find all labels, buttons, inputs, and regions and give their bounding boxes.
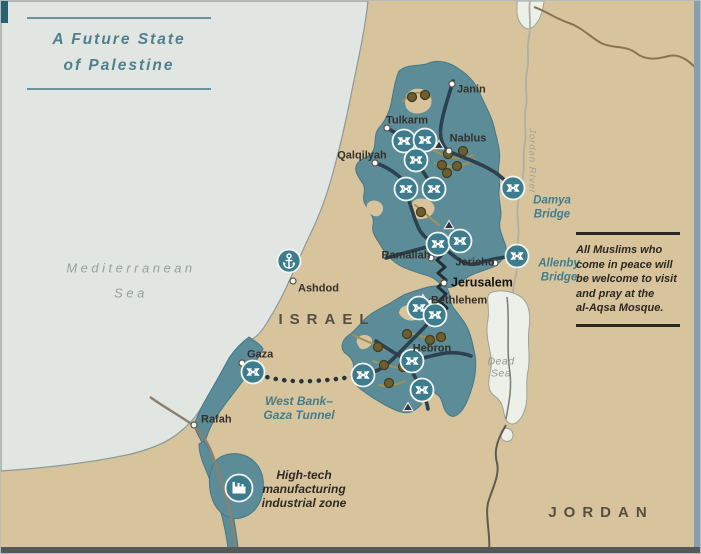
community-dot (443, 169, 452, 178)
road-crossing-icon (395, 178, 418, 201)
community-dot (417, 208, 426, 217)
right-edge-strip (694, 1, 700, 554)
quote-box: All Muslims who come in peace will be we… (576, 232, 680, 327)
community-dot (459, 147, 468, 156)
community-dot (408, 93, 417, 102)
community-dot (374, 343, 383, 352)
city-dot (446, 148, 452, 154)
map-title: A Future State of Palestine (21, 9, 217, 98)
community-dot (453, 162, 462, 171)
title-rule-top (27, 17, 211, 19)
anchor-port-icon (278, 250, 301, 273)
factory-icon (226, 475, 253, 502)
community-dot (438, 161, 447, 170)
bottom-edge-strip (1, 547, 701, 553)
road-crossing-icon (405, 149, 428, 172)
road-crossing-icon (352, 364, 375, 387)
road-crossing-icon (423, 178, 446, 201)
title-line1: A Future State (21, 27, 217, 53)
community-dot (421, 91, 430, 100)
title-rule-bottom (27, 88, 211, 90)
quote-text: All Muslims who come in peace will be we… (576, 243, 680, 316)
road-crossing-icon (242, 361, 265, 384)
city-dot (428, 255, 434, 261)
road-crossing-icon (424, 304, 447, 327)
city-dot (290, 278, 296, 284)
road-crossing-icon (449, 230, 472, 253)
map-stage: Mediterranean SeaISRAELJORDANJaninTulkar… (0, 0, 701, 554)
city-dot (441, 280, 447, 286)
community-dot (385, 379, 394, 388)
road-crossing-icon (401, 350, 424, 373)
community-dot (426, 336, 435, 345)
city-dot (449, 81, 455, 87)
road-crossing-icon (427, 233, 450, 256)
city-dot (384, 125, 390, 131)
title-line2: of Palestine (21, 53, 217, 79)
community-dot (380, 361, 389, 370)
road-crossing-icon (502, 177, 525, 200)
city-dot (191, 422, 197, 428)
city-dot (372, 160, 378, 166)
road-crossing-icon (411, 379, 434, 402)
city-dot (492, 260, 498, 266)
road-crossing-icon (506, 245, 529, 268)
community-dot (403, 330, 412, 339)
corner-artifact (1, 1, 8, 23)
community-dot (437, 333, 446, 342)
